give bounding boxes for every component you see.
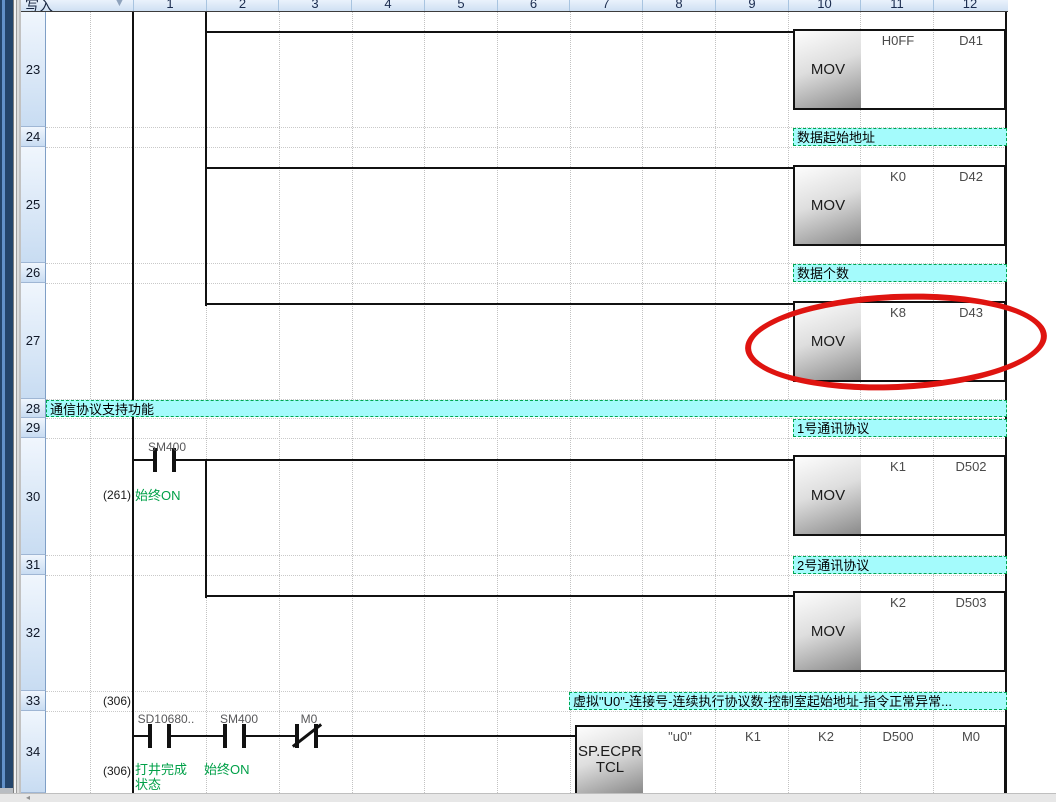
column-header-2: 2 [206,0,278,11]
device-note-line2: 状态 [135,777,187,792]
row-number-34[interactable]: 34 [21,711,46,793]
device-note-line1: 打井完成 [135,762,187,777]
contact-bar [167,724,171,748]
mnemonic-cell: MOV [795,31,861,108]
mnemonic-line1: SP.ECPR [578,744,642,760]
comment-bar-row28[interactable]: 通信协议支持功能 [46,400,1007,417]
row-number-33[interactable]: 33 [21,691,46,711]
row-number-31[interactable]: 31 [21,555,46,575]
row-number-23[interactable]: 23 [21,12,46,127]
rung-34-seg4 [318,735,577,737]
row-number-30[interactable]: 30 [21,438,46,555]
comment-bar-row24[interactable]: 数据起始地址 [793,128,1007,146]
branch-rail-bottom [205,460,207,598]
row-number-24[interactable]: 24 [21,127,46,147]
device-note-sm400-row30: 始终ON [135,488,181,503]
rung-23 [206,31,794,33]
column-header-9: 9 [715,0,788,11]
contact-bar [242,724,246,748]
operand-dest: D502 [955,459,986,474]
instruction-box-sp-ecprtcl-row34[interactable]: SP.ECPR TCL "u0" K1 K2 D500 M0 [575,725,1006,795]
column-header-3: 3 [278,0,351,11]
column-header-bar: 写入 ▼ 1 2 3 4 5 6 7 8 9 10 11 12 [0,0,1008,12]
operand-src: H0FF [882,33,915,48]
row-number-32[interactable]: 32 [21,575,46,691]
contact-bar [148,724,152,748]
comment-bar-row26[interactable]: 数据个数 [793,264,1007,282]
operand-3: K2 [818,729,834,744]
mnemonic-cell: MOV [795,593,861,670]
device-note-sd10680-row34: 打井完成 状态 [135,762,187,792]
mnemonic-line2: TCL [578,760,642,776]
docked-panel-edge [0,0,13,788]
operand-4: D500 [882,729,913,744]
operand-src: K2 [890,595,906,610]
column-header-11: 11 [860,0,933,11]
rung-32 [206,595,794,597]
operand-dest: D503 [955,595,986,610]
contact-label: SM400 [148,440,186,454]
contact-bar [223,724,227,748]
comment-bar-row29[interactable]: 1号通讯协议 [793,419,1007,437]
row-number-28[interactable]: 28 [21,399,46,418]
column-header-1: 1 [133,0,206,11]
instruction-box-mov-row30[interactable]: MOV K1 D502 [793,455,1006,536]
grid-line-horizontal [46,438,1006,439]
step-number-row34: (306) [91,764,131,778]
rung-27 [206,303,794,305]
column-header-5: 5 [424,0,497,11]
column-header-10: 10 [788,0,860,11]
row-number-26[interactable]: 26 [21,263,46,283]
panel-edge-stripe [2,0,5,788]
mnemonic-cell: MOV [795,457,861,534]
row-number-27[interactable]: 27 [21,283,46,399]
row-number-29[interactable]: 29 [21,418,46,438]
instruction-box-mov-row23[interactable]: MOV H0FF D41 [793,29,1006,110]
operand-dest: D42 [959,169,983,184]
mnemonic-cell: MOV [795,167,861,244]
rung-34-seg2 [171,735,227,737]
rung-25 [206,167,794,169]
contact-label: M0 [301,712,318,726]
grid-line-horizontal [46,283,1006,284]
column-header-6: 6 [497,0,569,11]
instruction-box-mov-row25[interactable]: MOV K0 D42 [793,165,1006,246]
instruction-box-mov-row32[interactable]: MOV K2 D503 [793,591,1006,672]
panel-splitter[interactable] [13,0,21,793]
operand-dest: D41 [959,33,983,48]
comment-bar-row31[interactable]: 2号通讯协议 [793,556,1007,574]
column-header-4: 4 [351,0,424,11]
branch-rail-top [205,12,207,306]
dropdown-icon[interactable]: ▼ [114,0,125,9]
column-header-7: 7 [569,0,642,11]
comment-bar-row33[interactable]: 虚拟"U0"-连接号-连续执行协议数-控制室起始地址-指令正常异常... [569,692,1007,710]
grid-line-horizontal [46,575,1006,576]
write-mode-label: 写入 [25,0,53,12]
step-number-row33: (306) [91,694,131,708]
row-number-25[interactable]: 25 [21,147,46,263]
device-note-sm400-row34: 始终ON [204,762,250,777]
step-number-row30: (261) [91,488,131,502]
column-header-12: 12 [933,0,1006,11]
operand-5: M0 [962,729,980,744]
operand-2: K1 [745,729,761,744]
operand-1: "u0" [668,729,692,744]
ladder-editor-window: SM400 SD10680.. SM400 M0 MOV H0FF D41 MO… [0,0,1056,802]
mnemonic-cell: SP.ECPR TCL [577,727,643,793]
column-header-8: 8 [642,0,715,11]
grid-line-horizontal [46,147,1006,148]
rung-30-seg2 [176,459,794,461]
scrollbar-left-icon[interactable]: ◂ [26,794,30,802]
contact-label: SM400 [220,712,258,726]
operand-src: K0 [890,169,906,184]
horizontal-scrollbar[interactable]: ◂ [0,793,1056,802]
operand-src: K1 [890,459,906,474]
contact-label: SD10680.. [138,712,195,726]
rung-34-seg3 [246,735,299,737]
